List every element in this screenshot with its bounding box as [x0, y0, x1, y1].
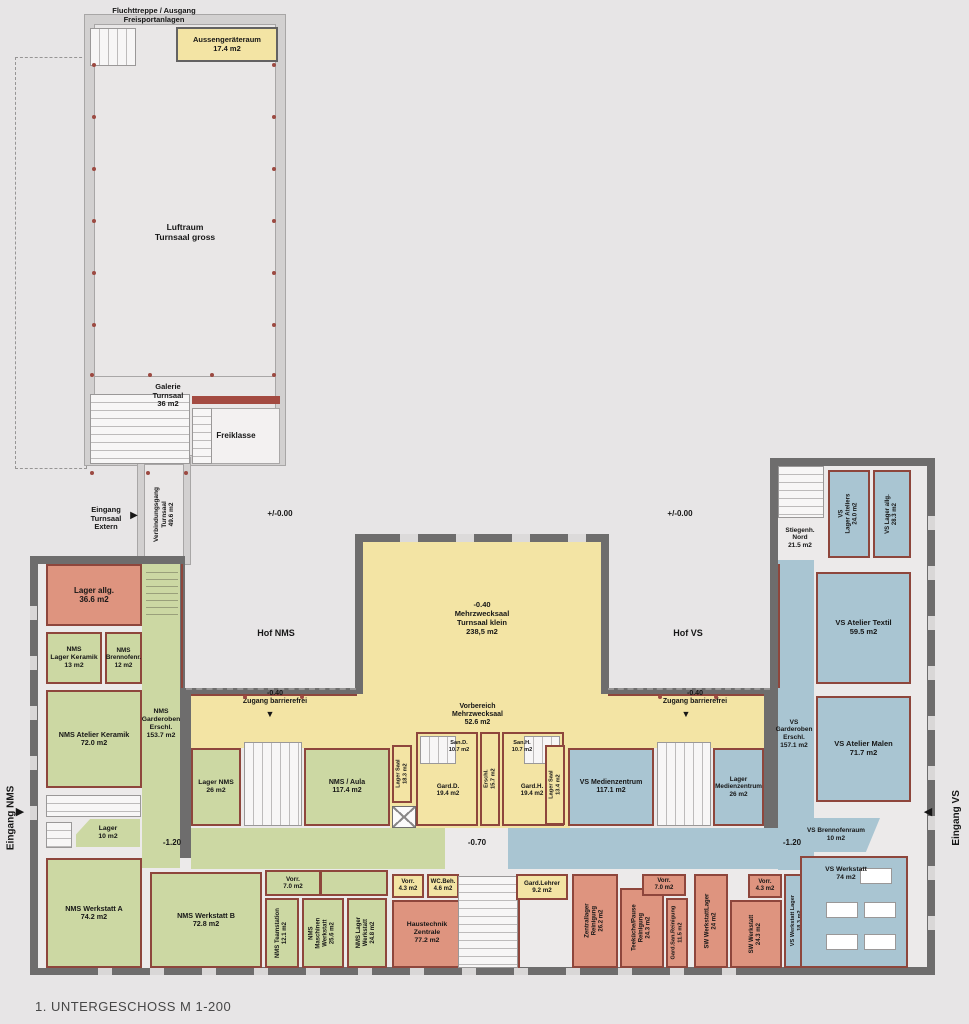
note-eingang-vs: Eingang VS — [946, 778, 968, 858]
column-dot — [90, 471, 94, 475]
room-vs-atelier-malen-label: VS Atelier Malen71.7 m2 — [834, 740, 893, 758]
room-aussengeraeteraum: Aussengeräteraum17.4 m2 — [176, 27, 278, 62]
column-dot — [272, 323, 276, 327]
arrow-eingang-turnsaal: ▶ — [126, 508, 142, 524]
room-nms-aula-label: NMS / Aula117.4 m2 — [329, 779, 365, 796]
note-zugang-left: -0.40Zugang barrierefrei — [220, 686, 330, 710]
room-nms-maschinen-werkstatt-label: NMSMaschinenWerkstatt25.6 m2 — [309, 917, 337, 948]
desk-3 — [864, 902, 896, 918]
arrow-zugang-left: ▼ — [262, 708, 278, 720]
column-dot — [184, 471, 188, 475]
room-mehrzwecksaal: -0.40MehrzwecksaalTurnsaal klein238,5 m2 — [363, 542, 601, 696]
arrow-zugang-right: ▼ — [678, 708, 694, 720]
redline-hof-nms — [181, 564, 183, 688]
room-lager-saal-left-label: Lager Saal18.3 m2 — [395, 760, 408, 788]
note-eingang-turnsaal: EingangTurnsaalExtern — [80, 500, 132, 538]
room-vorr-70-right-label: Vorr.7.0 m2 — [655, 878, 674, 892]
room-nms-brennofenr: NMSBrennofenr.12 m2 — [105, 632, 142, 684]
galerie-line — [94, 376, 276, 377]
room-green-filler — [320, 870, 388, 896]
column-dot — [658, 695, 662, 699]
room-vs-medienzentrum-label: VS Medienzentrum117.1 m2 — [580, 779, 643, 796]
column-dot — [210, 373, 214, 377]
note-galerie-label: GalerieTurnsaal36 m2 — [153, 383, 184, 410]
note-fluchttreppe: Fluchttreppe / AusgangFreisportanlagen — [88, 5, 220, 27]
note-level-0-right-label: +/-0.00 — [667, 509, 692, 518]
redline-hof-vs — [778, 564, 780, 688]
arrow-zugang-left-label: ▼ — [266, 709, 275, 720]
column-dot — [272, 167, 276, 171]
stair-stiegenhaus-nord — [778, 466, 824, 518]
room-vorr-43-left-label: Vorr.4.3 m2 — [399, 879, 418, 893]
corridor-bottom-nms — [191, 828, 445, 869]
room-vorr-nms-label: Vorr.7.0 m2 — [283, 876, 303, 891]
floor-plan: Aussengeräteraum17.4 m2Fluchttreppe / Au… — [0, 0, 969, 1024]
room-lager-allg-label: Lager allg.36.6 m2 — [74, 586, 114, 605]
room-lager-medienzentrum-label: LagerMedienzentrum26 m2 — [715, 776, 762, 799]
note-zugang-right: -0.40Zugang barrierefrei — [640, 686, 750, 710]
room-lager-medienzentrum: LagerMedienzentrum26 m2 — [713, 748, 764, 826]
elevator — [392, 806, 416, 828]
room-vs-lager-ateliers-label: VSLager Ateliers24.0 m2 — [838, 494, 859, 534]
stair-eingang-nms-2 — [46, 822, 72, 848]
room-vs-lager-allg-label: VS Lager allg.28.3 m2 — [885, 494, 899, 534]
note-haustechnik: HaustechnikZentrale77.2 m2 — [392, 912, 462, 954]
room-teekueche: Teeküche/PauseReinigung24.3 m2 — [620, 888, 664, 968]
stair-nms-corridor — [146, 566, 178, 620]
room-sw-werkstattlager-label: SW WerkstattLager24 m2 — [704, 894, 718, 949]
column-dot — [148, 373, 152, 377]
note-level-0-left-label: +/-0.00 — [267, 509, 292, 518]
note-verbindungsgang-label: VerbindungsgangTurnsaal49.6 m2 — [153, 487, 176, 542]
note-vs-werkstatt: VS Werkstatt74 m2 — [810, 862, 882, 886]
window-band-bottom — [60, 968, 760, 975]
stair-turnsaal-top — [90, 28, 136, 66]
note-level-0-right: +/-0.00 — [655, 508, 705, 520]
room-zentrallager-reinigung-label: ZentrallagerReinigung26.2 m2 — [584, 904, 605, 938]
window-band-right — [928, 480, 935, 940]
room-wc-beh: WC.Beh.4.6 m2 — [427, 874, 459, 898]
desk-2 — [826, 902, 858, 918]
column-dot — [300, 695, 304, 699]
room-vorr-43-right-label: Vorr.4.3 m2 — [756, 879, 775, 893]
room-vs-atelier-textil: VS Atelier Textil59.5 m2 — [816, 572, 911, 684]
note-hof-nms-label: Hof NMS — [257, 628, 295, 639]
room-teekueche-label: Teeküche/PauseReinigung24.3 m2 — [631, 905, 652, 952]
room-vs-lager-allg: VS Lager allg.28.3 m2 — [873, 470, 911, 558]
room-nms-werkstatt-a: NMS Werkstatt A74.2 m2 — [46, 858, 142, 968]
room-nms-maschinen-werkstatt: NMSMaschinenWerkstatt25.6 m2 — [302, 898, 344, 968]
room-nms-lager-keramik: NMSLager Keramik13 m2 — [46, 632, 102, 684]
column-dot — [90, 373, 94, 377]
arrow-zugang-right-label: ▼ — [682, 709, 691, 720]
room-vs-medienzentrum: VS Medienzentrum117.1 m2 — [568, 748, 654, 826]
note-vs-garderoben: VSGarderobenErschl.157.1 m2 — [768, 710, 820, 758]
room-freiklasse-label: Freiklasse — [216, 431, 255, 440]
room-lager-10-label: Lager10 m2 — [98, 825, 117, 841]
room-lager-nms-label: Lager NMS26 m2 — [198, 779, 234, 795]
room-vorr-43-left: Vorr.4.3 m2 — [392, 874, 424, 898]
room-vs-lager-ateliers: VSLager Ateliers24.0 m2 — [828, 470, 870, 558]
stair-aula — [244, 742, 302, 826]
stair-medienzentrum — [657, 742, 711, 826]
arrow-eingang-nms-label: ▶ — [16, 806, 24, 819]
room-nms-atelier-keramik: NMS Atelier Keramik72.0 m2 — [46, 690, 142, 788]
luftraum-dashed-outline — [15, 57, 87, 469]
note-luftraum: LuftraumTurnsaal gross — [130, 220, 240, 244]
note-level-0-left: +/-0.00 — [255, 508, 305, 520]
column-dot — [272, 63, 276, 67]
stair-eingang-nms-1 — [46, 795, 141, 817]
room-gard-lehrer-label: Gard.Lehrer9.2 m2 — [524, 880, 560, 895]
room-nms-aula: NMS / Aula117.4 m2 — [304, 748, 390, 826]
room-aussengeraeteraum-label: Aussengeräteraum17.4 m2 — [193, 36, 261, 54]
note-fluchttreppe-label: Fluchttreppe / AusgangFreisportanlagen — [112, 7, 195, 25]
note-gard-h-label: Gard.H.19.4 m2 — [521, 783, 544, 798]
column-dot — [92, 323, 96, 327]
room-lager-nms: Lager NMS26 m2 — [191, 748, 241, 826]
note-vorbereich: VorbereichMehrzwecksaal52.6 m2 — [425, 697, 530, 733]
note-level-070-label: -0.70 — [468, 838, 486, 847]
desk-4 — [826, 934, 858, 950]
room-erschl-label: Erschl.15.7 m2 — [483, 769, 496, 790]
pilaster-band-mehrzwecksaal — [362, 534, 602, 542]
column-dot — [92, 219, 96, 223]
room-mehrzwecksaal-label: -0.40MehrzwecksaalTurnsaal klein238,5 m2 — [455, 601, 510, 636]
note-hof-vs: Hof VS — [652, 626, 724, 640]
arrow-eingang-vs-label: ◀ — [924, 806, 932, 819]
column-dot — [243, 695, 247, 699]
room-gard-lehrer: Gard.Lehrer9.2 m2 — [516, 874, 568, 900]
note-san-h: San.H.10.7 m2 — [503, 737, 541, 757]
hatch-freiklasse — [192, 408, 212, 464]
column-dot — [146, 471, 150, 475]
column-dot — [272, 219, 276, 223]
desk-5 — [864, 934, 896, 950]
room-nms-teamstation-label: NMS Teamstation12.1 m2 — [275, 908, 289, 958]
room-vorr-70-right: Vorr.7.0 m2 — [642, 874, 686, 896]
room-sw-werkstatt-label: SW Werkstatt24.3 m2 — [749, 915, 763, 954]
arrow-eingang-nms: ▶ — [12, 804, 28, 820]
note-gard-d-label: Gard.D.19.4 m2 — [437, 783, 460, 798]
room-vs-brennofenraum-label: VS Brennofenraum10 m2 — [807, 827, 865, 842]
room-nms-lager-keramik-label: NMSLager Keramik13 m2 — [50, 646, 97, 670]
room-sw-werkstatt: SW Werkstatt24.3 m2 — [730, 900, 782, 968]
column-dot — [92, 167, 96, 171]
room-vorr-43-right: Vorr.4.3 m2 — [748, 874, 782, 898]
room-vorr-nms: Vorr.7.0 m2 — [265, 870, 321, 896]
column-dot — [92, 271, 96, 275]
note-level-120-left-label: -1.20 — [163, 838, 181, 847]
note-level-120-right: -1.20 — [770, 837, 814, 849]
note-gard-d: Gard.D.19.4 m2 — [428, 780, 468, 800]
column-dot — [272, 271, 276, 275]
room-gard-san-reinigung-label: Gard.San.Reinigung11.5 m2 — [670, 906, 683, 960]
room-nms-werkstatt-a-label: NMS Werkstatt A74.2 m2 — [65, 905, 123, 922]
room-vs-atelier-malen: VS Atelier Malen71.7 m2 — [816, 696, 911, 802]
note-luftraum-label: LuftraumTurnsaal gross — [155, 222, 215, 242]
note-vs-garderoben-label: VSGarderobenErschl.157.1 m2 — [776, 719, 813, 750]
column-dot — [92, 115, 96, 119]
note-stiegenhaus-nord: Stiegenh.Nord21.5 m2 — [770, 520, 830, 556]
note-san-d-label: San.D.10.7 m2 — [449, 740, 470, 753]
room-nms-teamstation: NMS Teamstation12.1 m2 — [265, 898, 299, 968]
corridor-bottom-vs — [508, 828, 778, 869]
room-nms-lager-werkstatt-label: NMS LagerWerkstatt24.8 m2 — [356, 917, 377, 948]
plan-title: 1. UNTERGESCHOSS M 1-200 — [35, 999, 231, 1014]
room-nms-lager-werkstatt: NMS LagerWerkstatt24.8 m2 — [347, 898, 387, 968]
note-zugang-left-label: -0.40Zugang barrierefrei — [243, 690, 307, 707]
room-nms-werkstatt-b: NMS Werkstatt B72.8 m2 — [150, 872, 262, 968]
column-dot — [272, 373, 276, 377]
note-vorbereich-label: VorbereichMehrzwecksaal52.6 m2 — [452, 703, 503, 728]
column-dot — [714, 695, 718, 699]
note-galerie: GalerieTurnsaal36 m2 — [128, 379, 208, 413]
note-stiegenhaus-nord-label: Stiegenh.Nord21.5 m2 — [785, 527, 814, 550]
room-lager-allg: Lager allg.36.6 m2 — [46, 564, 142, 626]
note-level-120-left: -1.20 — [150, 837, 194, 849]
room-erschl: Erschl.15.7 m2 — [480, 732, 500, 826]
note-verbindungsgang: VerbindungsgangTurnsaal49.6 m2 — [140, 478, 188, 550]
room-nms-werkstatt-b-label: NMS Werkstatt B72.8 m2 — [177, 912, 235, 929]
arrow-eingang-vs: ◀ — [920, 804, 936, 820]
note-nms-garderoben-label: NMSGarderobenErschl.153.7 m2 — [142, 708, 181, 740]
note-gard-h: Gard.H.19.4 m2 — [512, 780, 552, 800]
note-level-070: -0.70 — [455, 837, 499, 849]
note-san-d: San.D.10.7 m2 — [440, 737, 478, 757]
column-dot — [272, 115, 276, 119]
note-eingang-turnsaal-label: EingangTurnsaalExtern — [91, 506, 122, 533]
column-dot — [92, 63, 96, 67]
room-vs-atelier-textil-label: VS Atelier Textil59.5 m2 — [835, 619, 891, 637]
room-lager-saal-left: Lager Saal18.3 m2 — [392, 745, 412, 803]
room-zentrallager-reinigung: ZentrallagerReinigung26.2 m2 — [572, 874, 618, 968]
stair-central — [458, 876, 518, 968]
note-haustechnik-label: HaustechnikZentrale77.2 m2 — [407, 921, 447, 945]
note-eingang-vs-label: Eingang VS — [951, 790, 963, 846]
room-gard-san-reinigung: Gard.San.Reinigung11.5 m2 — [666, 898, 688, 968]
note-san-h-label: San.H.10.7 m2 — [512, 740, 533, 753]
room-nms-brennofenr-label: NMSBrennofenr.12 m2 — [106, 647, 141, 669]
room-sw-werkstattlager: SW WerkstattLager24 m2 — [694, 874, 728, 968]
note-nms-garderoben: NMSGarderobenErschl.153.7 m2 — [138, 700, 184, 748]
note-hof-nms: Hof NMS — [240, 626, 312, 640]
note-vs-werkstatt-label: VS Werkstatt74 m2 — [825, 866, 867, 882]
arrow-eingang-turnsaal-label: ▶ — [130, 510, 138, 522]
window-band-left — [30, 570, 37, 845]
room-wc-beh-label: WC.Beh.4.6 m2 — [431, 879, 456, 893]
room-nms-atelier-keramik-label: NMS Atelier Keramik72.0 m2 — [59, 731, 129, 748]
note-hof-vs-label: Hof VS — [673, 628, 703, 639]
note-level-120-right-label: -1.20 — [783, 838, 801, 847]
